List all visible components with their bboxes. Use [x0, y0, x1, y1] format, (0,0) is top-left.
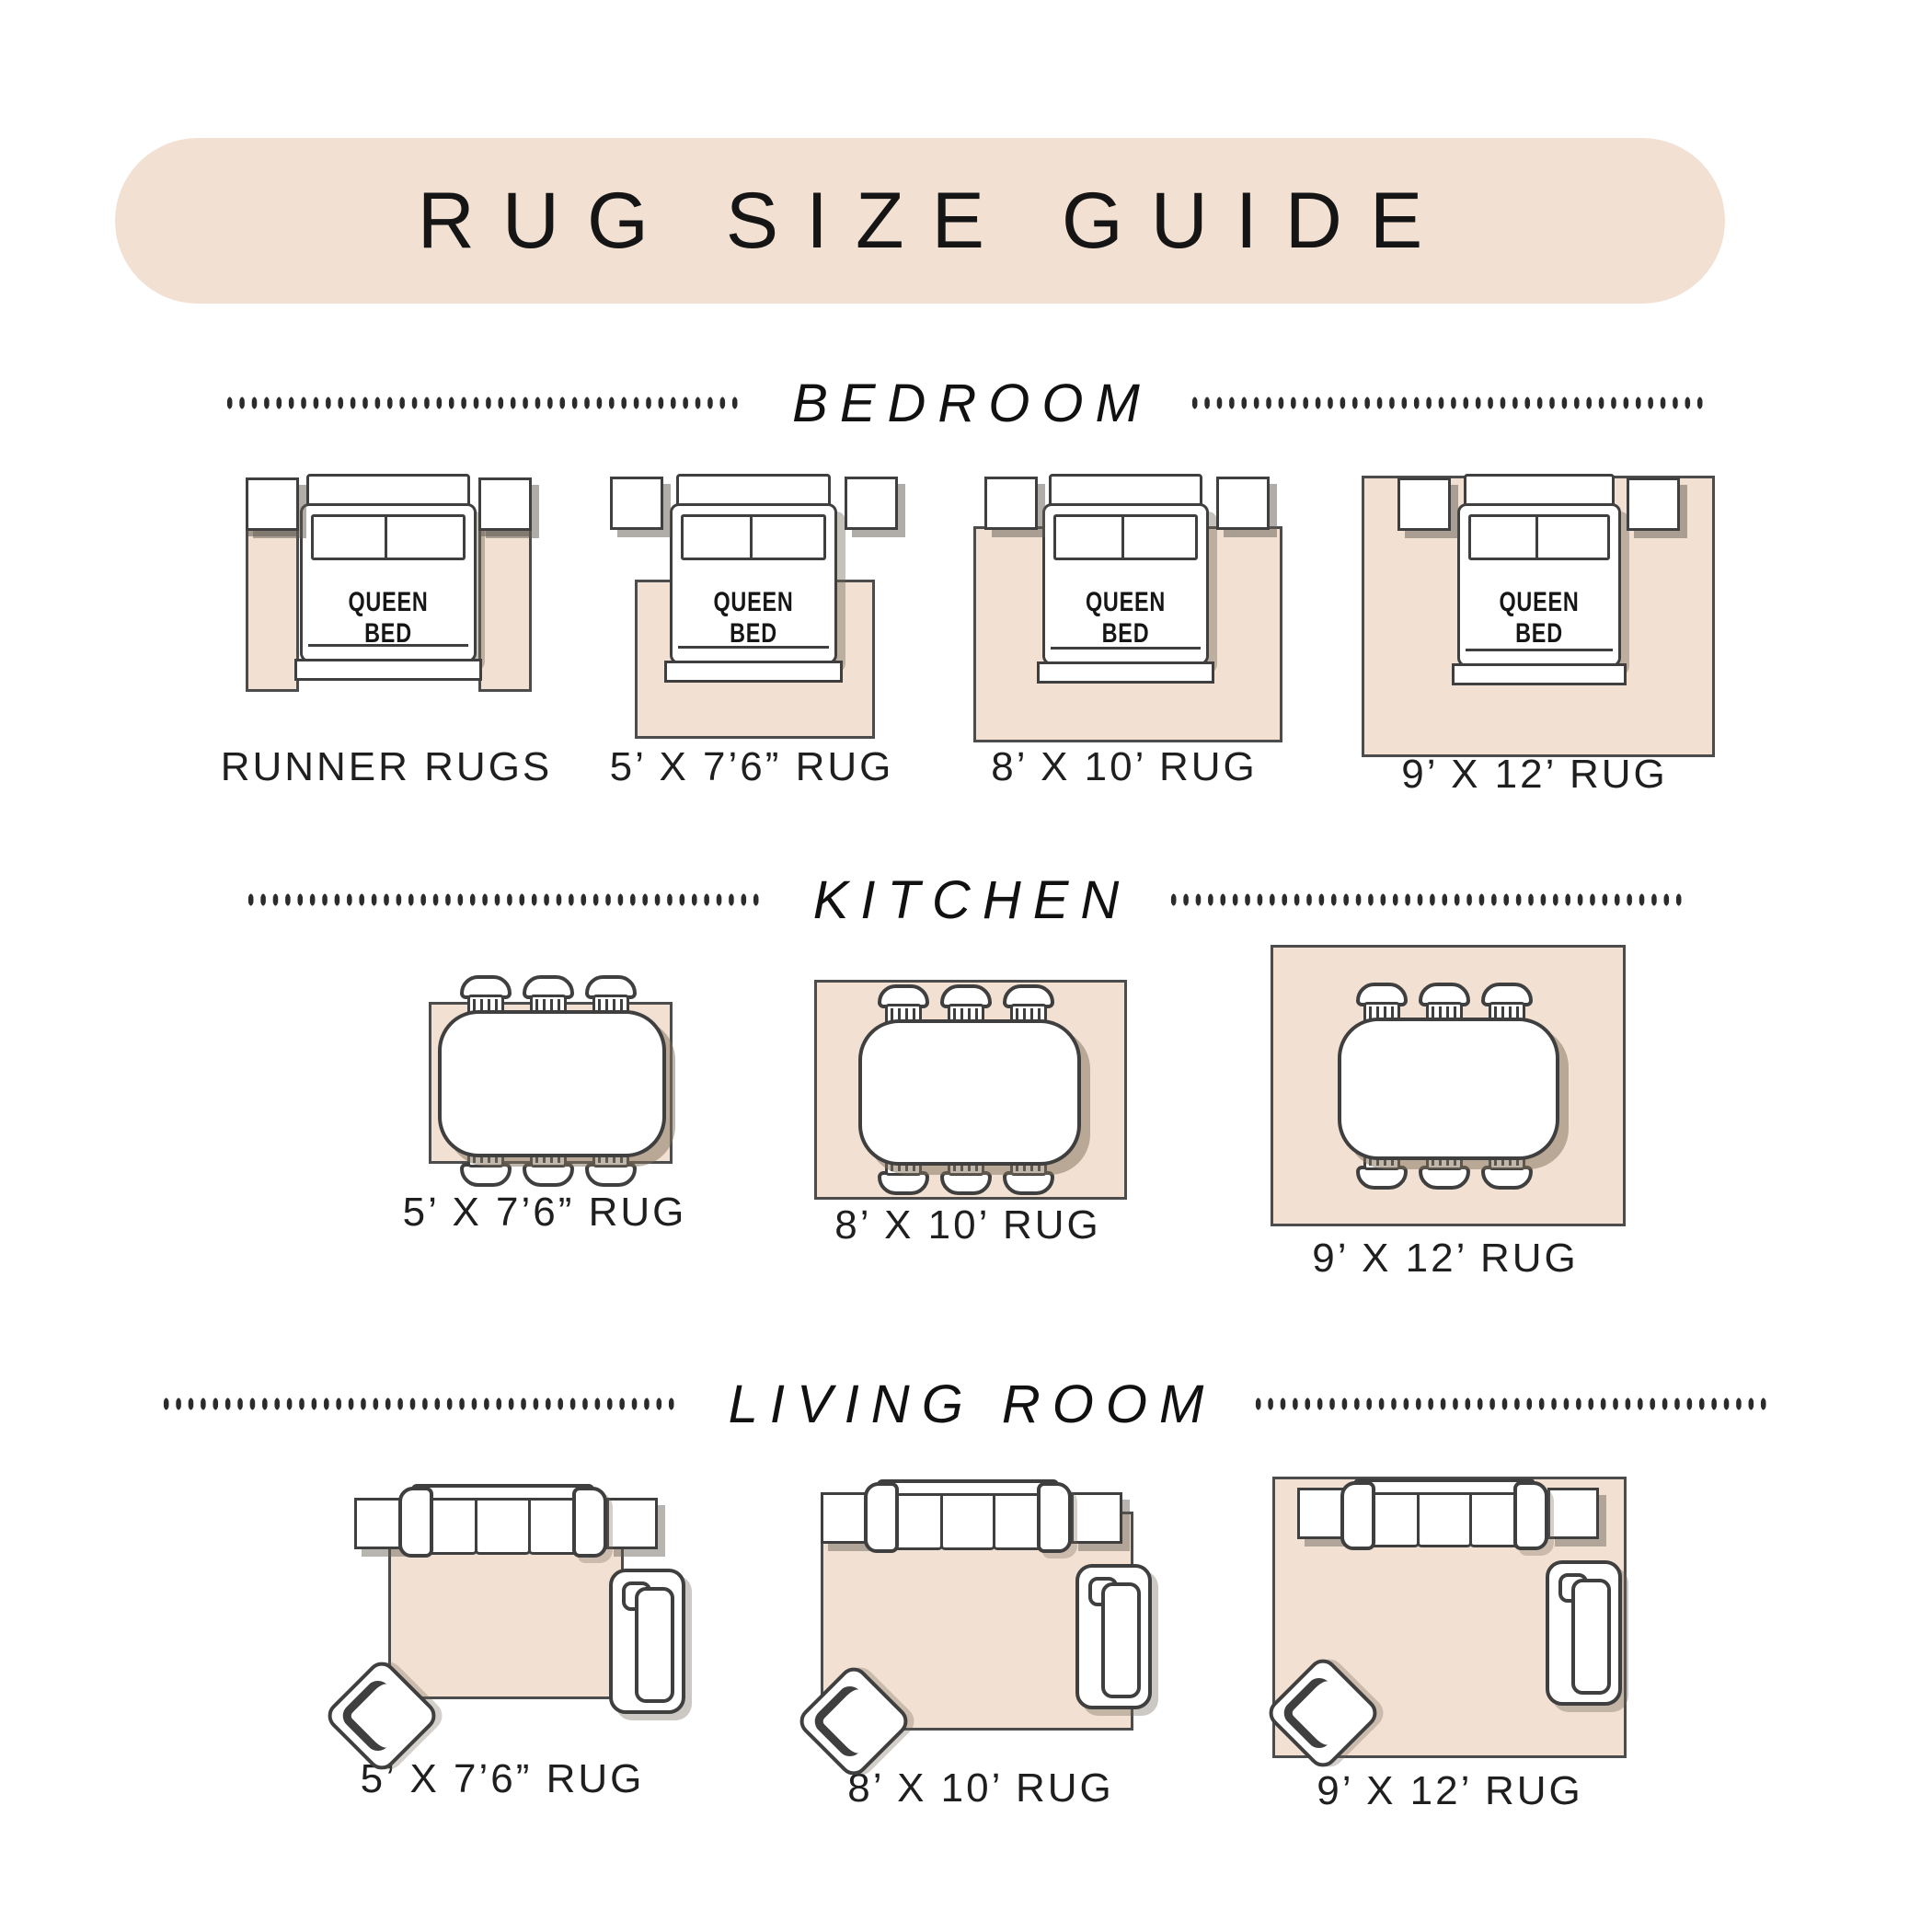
pillow [1121, 514, 1198, 560]
rug-size-guide-infographic: RUG SIZE GUIDE BEDROOM QUEEN BED RUNNER … [0, 0, 1932, 1932]
blanket-fold-line [678, 646, 829, 649]
footboard [664, 661, 843, 683]
pillow [1053, 514, 1130, 560]
sofa [1348, 1478, 1541, 1547]
page-title: RUG SIZE GUIDE [390, 176, 1450, 267]
side-table [606, 1498, 658, 1549]
queen-bed: QUEEN BED [1457, 474, 1621, 685]
queen-bed: QUEEN BED [1042, 474, 1209, 684]
footboard [294, 659, 482, 681]
dotted-divider-left [224, 397, 743, 409]
rug-5x76 [388, 1541, 624, 1699]
bed-label: QUEEN BED [1063, 587, 1189, 650]
dotted-divider-left [245, 893, 765, 906]
section-header-living-room: LIVING ROOM [0, 1369, 1932, 1439]
sofa-arm-right [1513, 1481, 1548, 1550]
pillow [681, 514, 757, 560]
header-banner: RUG SIZE GUIDE [115, 138, 1725, 304]
sofa-arm-left [864, 1482, 899, 1553]
sofa-cushions [888, 1493, 1048, 1550]
nightstand [246, 477, 299, 531]
rug-size-label: 9’ X 12’ RUG [1215, 1238, 1675, 1279]
mattress: QUEEN BED [1042, 503, 1209, 665]
nightstand [478, 477, 532, 531]
pillow [750, 514, 826, 560]
rug-size-label: 5’ X 7’6” RUG [272, 1759, 732, 1800]
dining-table [1338, 1018, 1559, 1160]
section-title-living-room: LIVING ROOM [717, 1374, 1216, 1435]
chaise-chair [1075, 1564, 1152, 1709]
dotted-divider-right [1189, 397, 1708, 409]
pillow [385, 514, 466, 560]
dining-table [438, 1010, 666, 1157]
accent-chair-back [810, 1681, 891, 1762]
rug-size-label: 8’ X 10’ RUG [738, 1205, 1198, 1246]
dotted-divider-left [160, 1397, 680, 1410]
mattress: QUEEN BED [1457, 503, 1621, 667]
nightstand [610, 477, 663, 530]
nightstand [1397, 477, 1451, 531]
mattress: QUEEN BED [670, 503, 837, 664]
side-table [1071, 1492, 1122, 1544]
runner-rug-left [246, 523, 299, 692]
pillow [1468, 514, 1544, 560]
dining-table [858, 1019, 1081, 1166]
dotted-divider-right [1167, 893, 1687, 906]
footboard [1452, 663, 1627, 685]
side-table [1547, 1488, 1599, 1539]
nightstand [984, 477, 1038, 530]
sofa-arm-right [1037, 1482, 1072, 1553]
footboard [1037, 661, 1214, 684]
rug-size-label: 5’ X 7’6” RUG [315, 1192, 775, 1233]
queen-bed: QUEEN BED [300, 474, 477, 681]
nightstand [1627, 477, 1680, 531]
queen-bed: QUEEN BED [670, 474, 837, 683]
accent-chair-back [338, 1675, 419, 1756]
nightstand [845, 477, 898, 530]
section-title-kitchen: KITCHEN [801, 869, 1132, 931]
accent-chair-back [1279, 1673, 1360, 1754]
runner-rug-right [478, 523, 532, 692]
section-header-bedroom: BEDROOM [0, 368, 1932, 438]
chaise-chair [609, 1569, 685, 1714]
sofa [871, 1479, 1064, 1550]
sofa-arm-right [572, 1487, 607, 1558]
bed-label: QUEEN BED [321, 587, 454, 650]
blanket-fold-line [308, 644, 468, 647]
sofa-arm-left [398, 1487, 433, 1558]
rug-size-label: 9’ X 12’ RUG [1220, 1771, 1680, 1811]
dotted-divider-right [1252, 1397, 1772, 1410]
blanket-fold-line [1051, 647, 1201, 650]
sofa [406, 1484, 600, 1555]
rug-size-label: 9’ X 12’ RUG [1305, 754, 1765, 795]
bed-label: QUEEN BED [1478, 587, 1601, 650]
bed-label: QUEEN BED [690, 587, 816, 650]
rug-size-label: 8’ X 10’ RUG [751, 1768, 1211, 1809]
blanket-fold-line [1466, 649, 1613, 651]
sofa-cushions [422, 1498, 583, 1555]
mattress: QUEEN BED [300, 503, 477, 662]
pillow [1535, 514, 1611, 560]
sofa-arm-left [1340, 1481, 1375, 1550]
chaise-chair [1546, 1560, 1622, 1706]
rug-size-label: 8’ X 10’ RUG [894, 747, 1354, 788]
pillow [311, 514, 392, 560]
sofa-cushions [1364, 1492, 1524, 1547]
section-title-bedroom: BEDROOM [780, 373, 1152, 434]
section-header-kitchen: KITCHEN [0, 865, 1932, 935]
nightstand [1216, 477, 1270, 530]
